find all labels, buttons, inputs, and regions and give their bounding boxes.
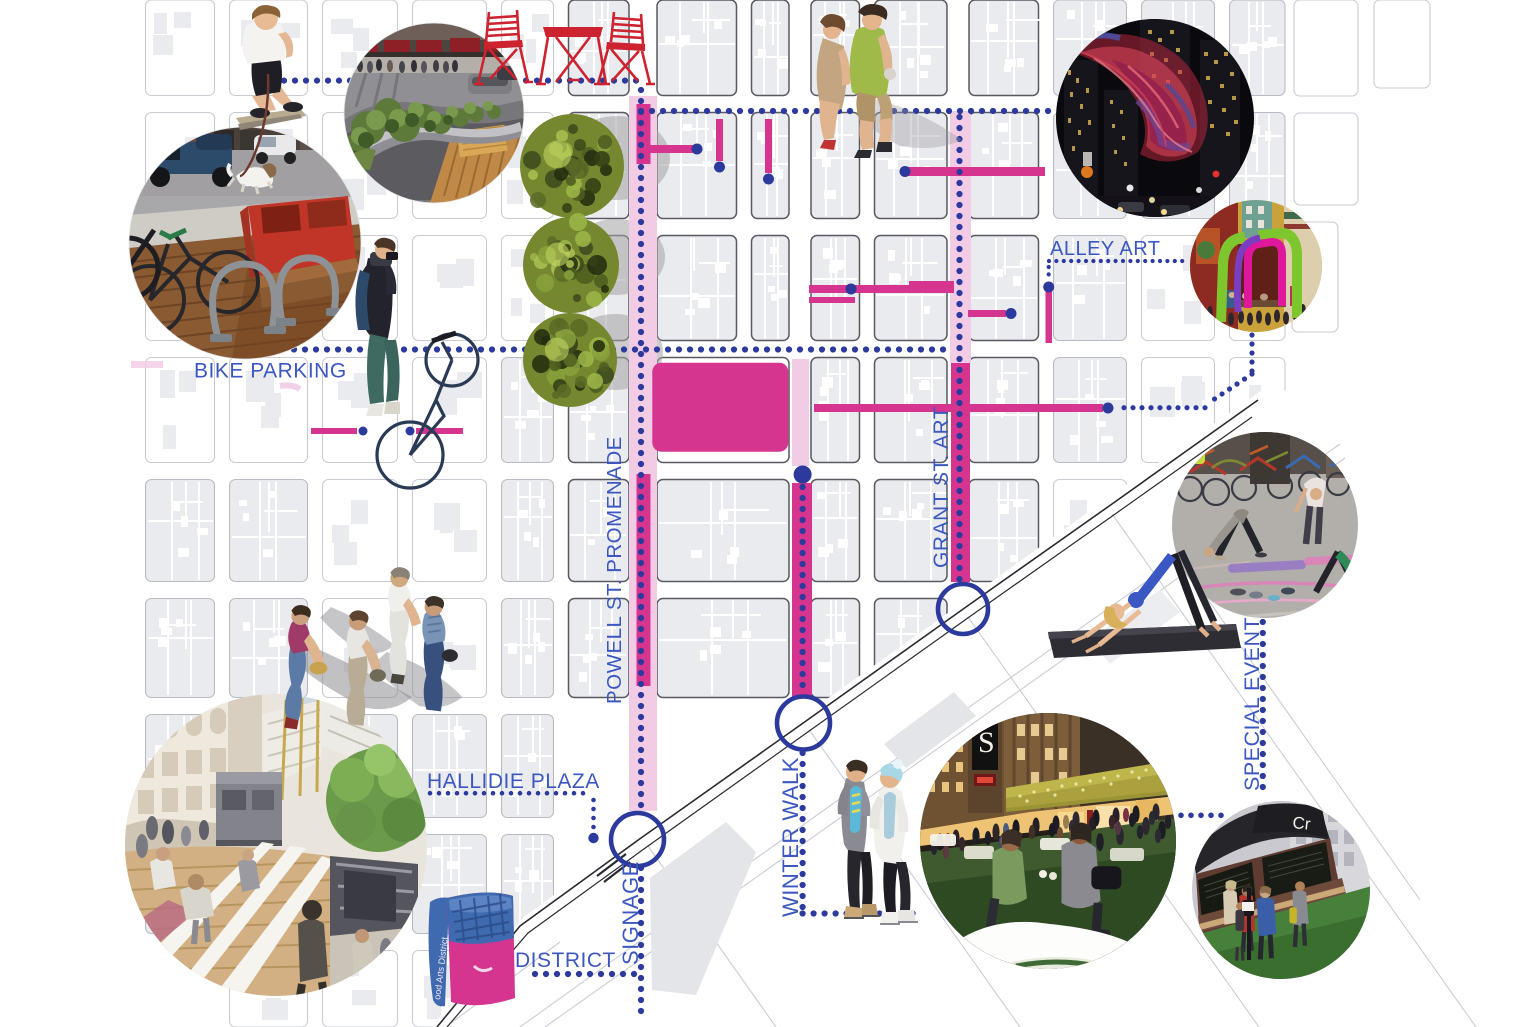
svg-text:DISTRICT: DISTRICT	[515, 949, 616, 972]
svg-text:Cr: Cr	[1292, 813, 1312, 834]
svg-text:ALLEY ART: ALLEY ART	[1050, 238, 1161, 260]
svg-text:POWELL ST. PROMENADE: POWELL ST. PROMENADE	[603, 436, 626, 704]
svg-text:SPECIAL EVENTS: SPECIAL EVENTS	[1240, 602, 1264, 791]
svg-text:SIGNAGE: SIGNAGE	[618, 861, 643, 965]
svg-text:WINTER WALK: WINTER WALK	[778, 757, 803, 917]
svg-text:BIKE PARKING: BIKE PARKING	[194, 360, 347, 383]
svg-text:HALLIDIE PLAZA: HALLIDIE PLAZA	[427, 770, 600, 793]
svg-text:GRANT ST. ART: GRANT ST. ART	[930, 406, 953, 568]
